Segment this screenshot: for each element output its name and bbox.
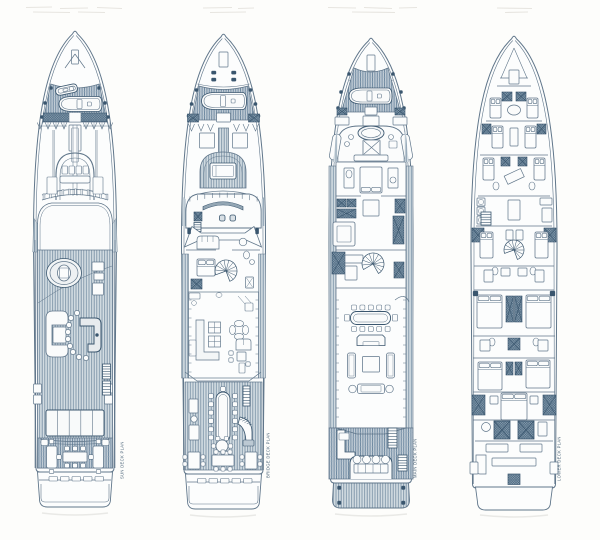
- svg-text:MAIN DECK PLAN: MAIN DECK PLAN: [413, 438, 418, 478]
- svg-text:BRIDGE DECK PLAN: BRIDGE DECK PLAN: [266, 432, 271, 478]
- svg-text:SUN DECK PLAN: SUN DECK PLAN: [120, 441, 125, 479]
- svg-text:LOWER DECK PLAN: LOWER DECK PLAN: [557, 436, 562, 481]
